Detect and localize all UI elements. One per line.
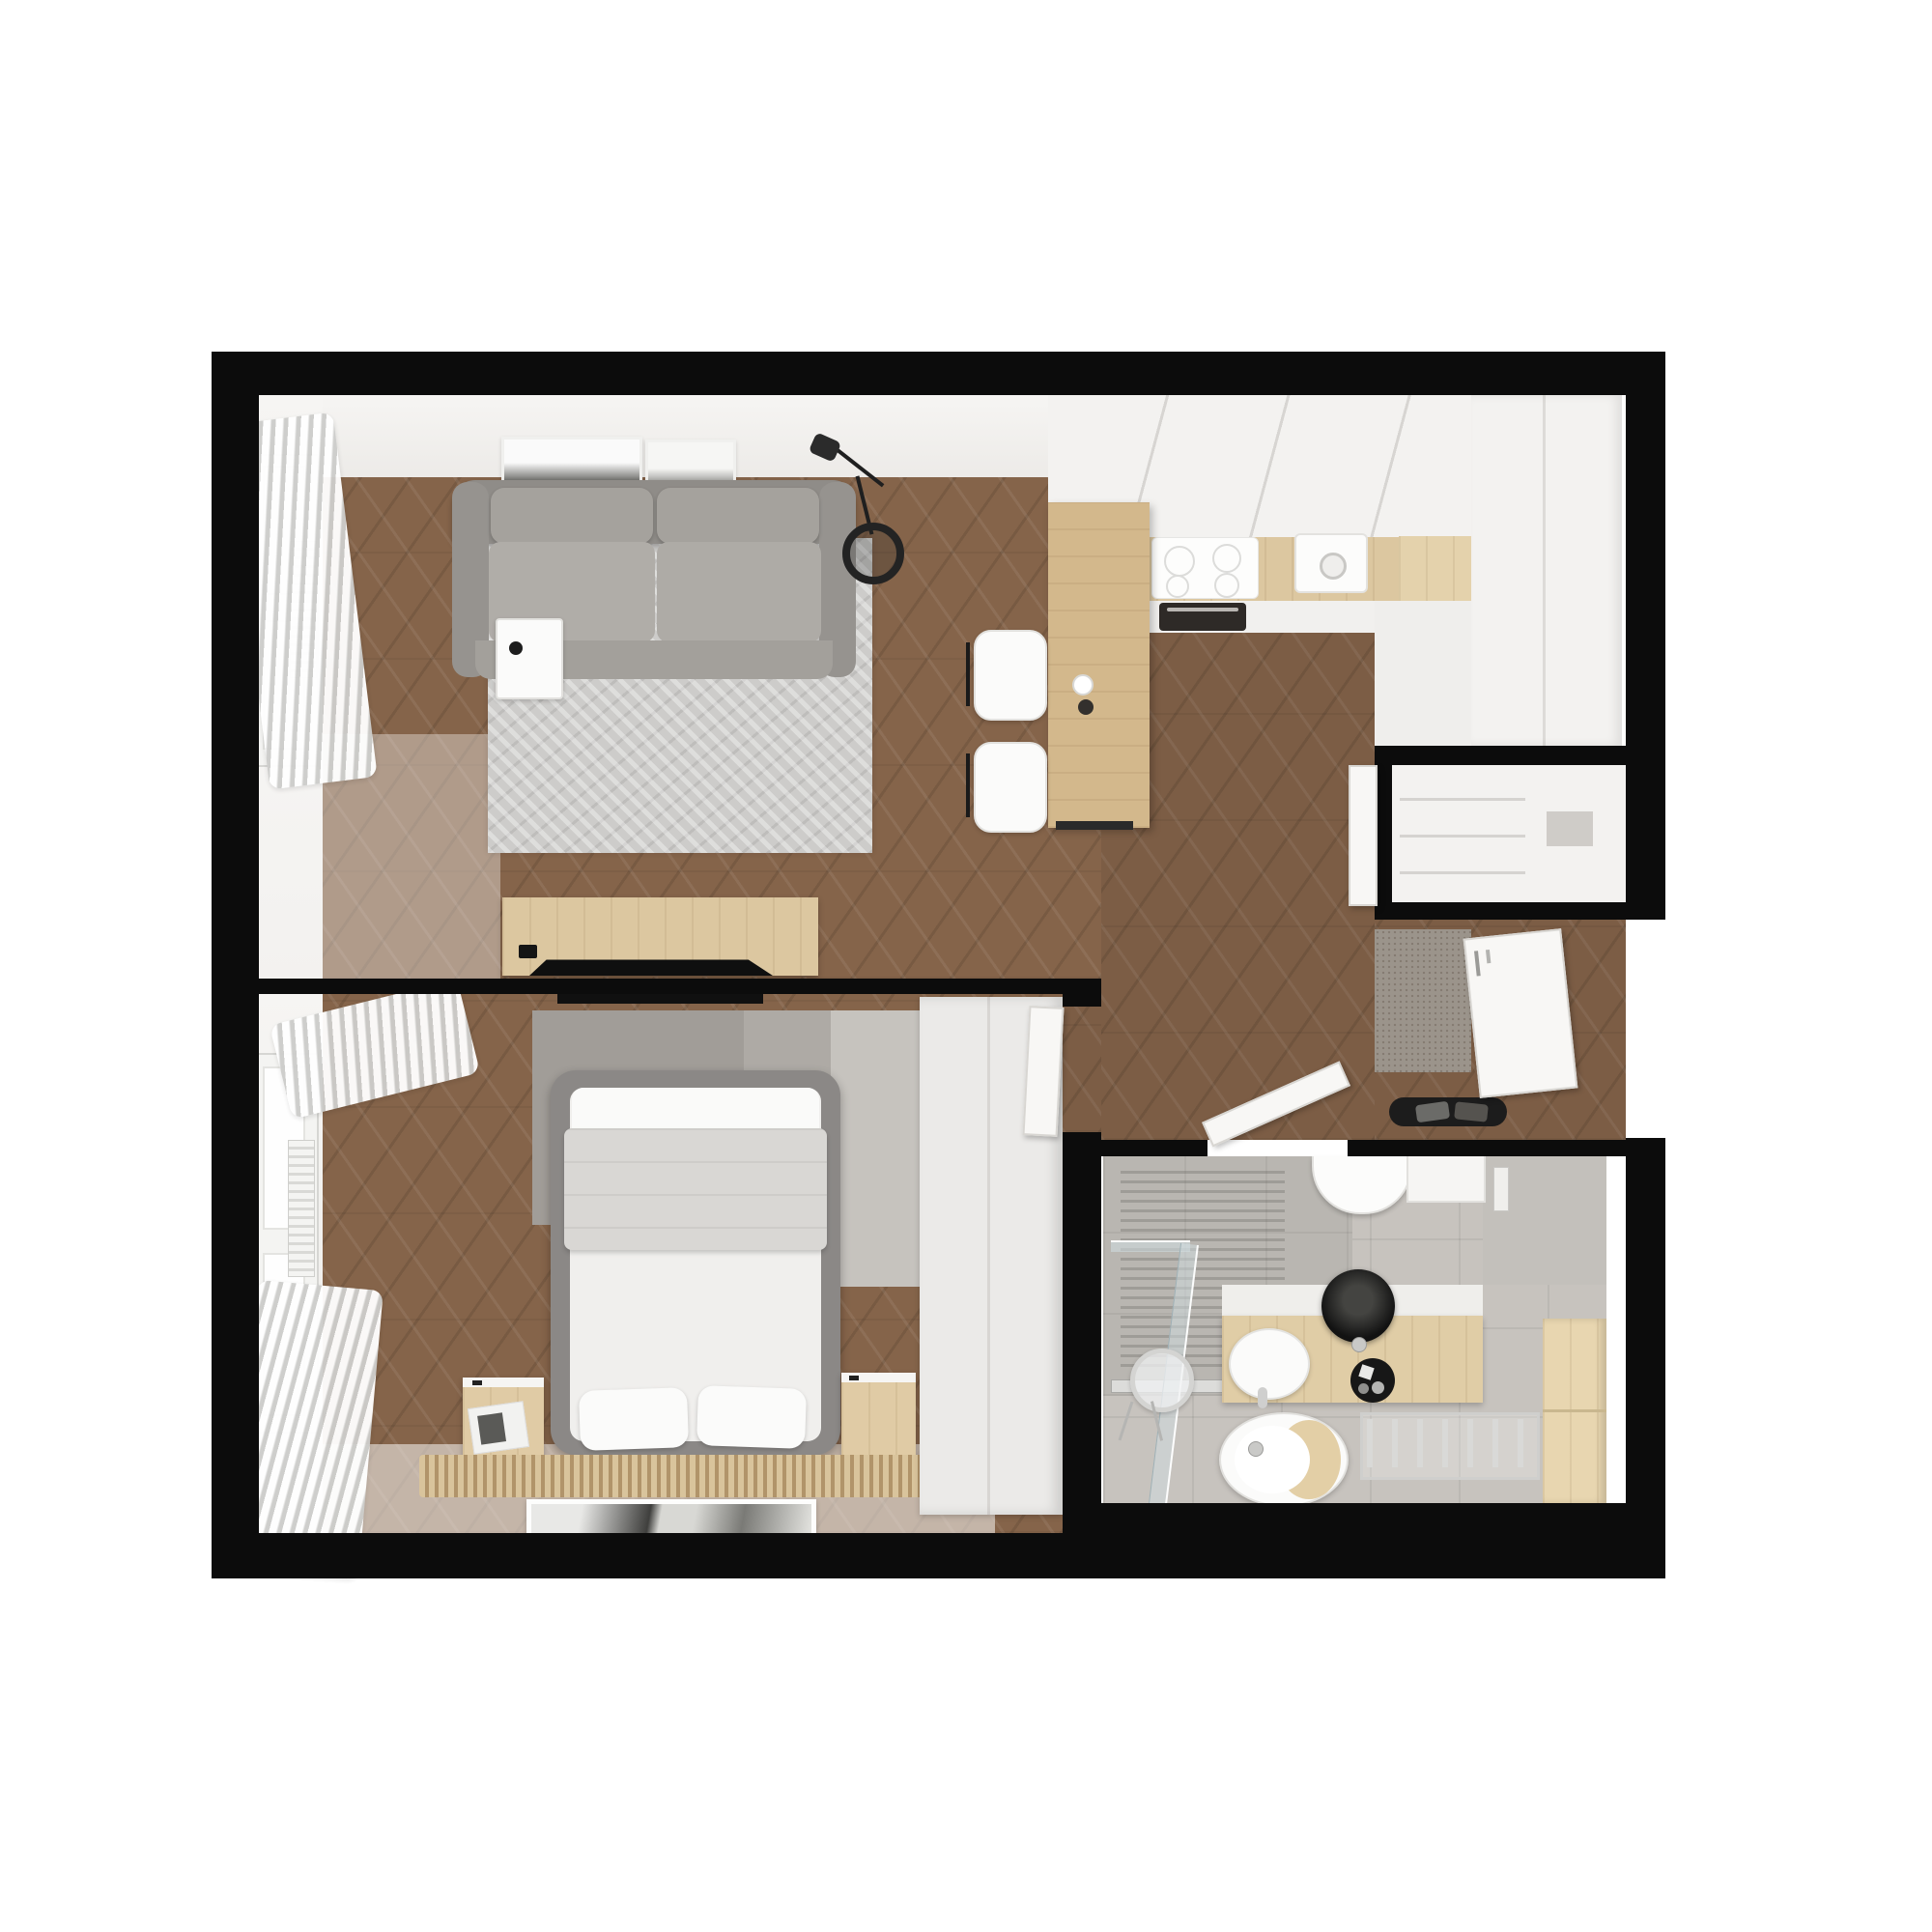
closet-box bbox=[1547, 811, 1593, 846]
radiator bbox=[288, 1140, 315, 1277]
coffee-cup bbox=[1072, 674, 1094, 696]
towel-radiator bbox=[1360, 1412, 1540, 1480]
door-handle bbox=[1474, 951, 1481, 976]
shower-glass-return bbox=[1111, 1240, 1190, 1252]
tv bbox=[529, 958, 773, 976]
table-decor bbox=[509, 641, 523, 655]
sofa-back-cushion bbox=[491, 488, 653, 544]
closet-interior bbox=[1392, 765, 1626, 902]
bathroom-side-cabinet bbox=[1543, 1319, 1606, 1504]
coffee-table bbox=[496, 618, 563, 699]
closet-wall-top bbox=[1375, 746, 1626, 765]
toiletry-item bbox=[1358, 1383, 1369, 1394]
remote-control bbox=[519, 945, 537, 958]
cabinet-divider bbox=[1543, 1409, 1606, 1412]
wall-top bbox=[212, 352, 1665, 395]
pillow bbox=[579, 1387, 689, 1451]
closet-shelf bbox=[1400, 798, 1525, 801]
bar-stool bbox=[974, 742, 1047, 833]
wall-under-bathroom bbox=[1063, 1503, 1626, 1536]
bedroom-door bbox=[1023, 1006, 1065, 1137]
sofa-seat-cushion bbox=[657, 542, 821, 642]
wall-hall-bathroom bbox=[1348, 1140, 1665, 1156]
kitchen-sink bbox=[1294, 533, 1368, 593]
entry-door bbox=[1463, 928, 1578, 1098]
closet-door bbox=[1349, 765, 1378, 906]
black-vessel-basin bbox=[1321, 1269, 1395, 1343]
wall-left bbox=[212, 352, 259, 1578]
shoe bbox=[1454, 1101, 1489, 1122]
basin-tap bbox=[1351, 1337, 1367, 1352]
closet-shelf bbox=[1400, 871, 1525, 874]
burner bbox=[1166, 575, 1189, 598]
entry-doorway bbox=[1626, 920, 1665, 1138]
cooktop bbox=[1151, 537, 1259, 599]
toilet-cistern bbox=[1406, 1156, 1486, 1203]
bed bbox=[551, 1070, 840, 1455]
burner bbox=[1212, 544, 1241, 573]
washbasin-tap bbox=[1258, 1387, 1267, 1408]
folded-blanket bbox=[564, 1128, 827, 1250]
oven bbox=[1159, 603, 1246, 631]
bidet bbox=[1219, 1412, 1349, 1507]
door-handle bbox=[1486, 950, 1491, 963]
floor-lamp-base bbox=[842, 523, 904, 584]
oven-handle bbox=[1167, 608, 1238, 611]
light-switch bbox=[1493, 1167, 1509, 1211]
sofa-back-cushion bbox=[657, 488, 819, 544]
floor-plan bbox=[0, 0, 1932, 1932]
towel-radiator-bars bbox=[1367, 1419, 1527, 1467]
accessories-bowl bbox=[1350, 1358, 1395, 1403]
shoe-tray bbox=[1389, 1097, 1507, 1126]
slat-runner bbox=[419, 1455, 931, 1497]
shoe bbox=[1415, 1101, 1450, 1123]
nightstand bbox=[841, 1373, 916, 1460]
washbasin bbox=[1229, 1328, 1310, 1400]
bidet-inner bbox=[1235, 1426, 1310, 1493]
wall-hall-bathroom bbox=[1085, 1140, 1207, 1156]
toiletry-item bbox=[1372, 1381, 1384, 1394]
bar-stool-leg bbox=[966, 753, 970, 817]
magazine bbox=[468, 1401, 529, 1455]
bar-stool bbox=[974, 630, 1047, 721]
toiletry-item bbox=[1358, 1364, 1374, 1379]
bidet-tap bbox=[1248, 1441, 1264, 1457]
filler-panel bbox=[1375, 601, 1471, 746]
nightstand-knob bbox=[472, 1380, 482, 1385]
closet-shelf bbox=[1400, 835, 1525, 838]
closet-wall-bottom bbox=[1375, 902, 1626, 920]
kitchen-peninsula bbox=[1048, 502, 1150, 828]
bedroom-tv bbox=[557, 994, 763, 1004]
bedroom-doorway bbox=[1063, 1007, 1101, 1132]
sink-drain bbox=[1320, 553, 1347, 580]
pillow bbox=[696, 1385, 807, 1449]
wall-living-bedroom bbox=[212, 979, 1101, 994]
round-mirror bbox=[1130, 1349, 1194, 1412]
burner bbox=[1164, 546, 1195, 577]
burner bbox=[1214, 573, 1239, 598]
kitchen-tall-cabinets bbox=[1471, 395, 1622, 746]
wall-bottom bbox=[212, 1533, 1665, 1578]
peninsula-base bbox=[1056, 821, 1133, 830]
coffee-saucer bbox=[1078, 699, 1094, 715]
magazine-photo bbox=[477, 1412, 506, 1444]
doormat bbox=[1375, 929, 1471, 1072]
bar-stool-leg bbox=[966, 642, 970, 706]
nightstand-knob bbox=[849, 1376, 859, 1380]
nightstand bbox=[463, 1378, 544, 1466]
